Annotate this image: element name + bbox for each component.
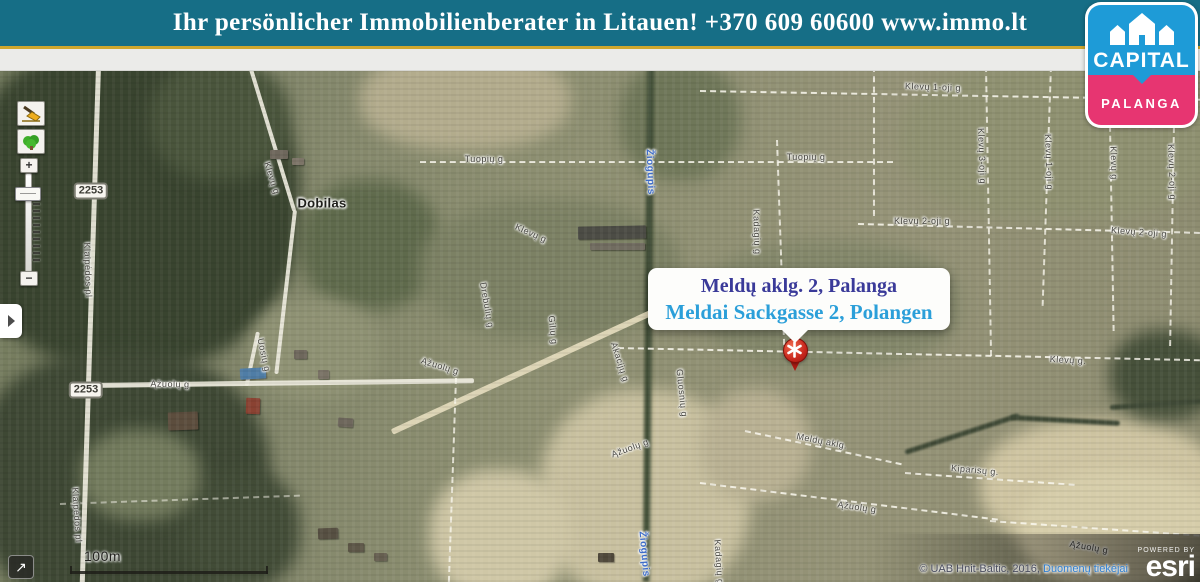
- road-number-badge: 2253: [69, 382, 103, 399]
- building: [168, 411, 199, 430]
- dashed-road: [873, 66, 875, 216]
- building: [598, 553, 614, 562]
- street-label: Klevų g: [1108, 146, 1119, 180]
- road-number-badge: 2253: [74, 183, 108, 200]
- arrow-up-right-icon: ↗: [15, 559, 27, 575]
- logo-city-text: PALANGA: [1101, 96, 1182, 111]
- header-title: Ihr persönlicher Immobilienberater in Li…: [0, 0, 1200, 46]
- building: [578, 225, 646, 239]
- scale-line: [70, 571, 268, 574]
- terrain-patch: [80, 430, 200, 520]
- building: [348, 543, 364, 552]
- building: [246, 398, 261, 414]
- street-label: Klevų 3-oji g: [976, 128, 988, 184]
- house-icon: [1129, 13, 1155, 45]
- clear-map-tool-button[interactable]: [17, 101, 45, 126]
- house-icon: [1110, 25, 1125, 45]
- house-icon: [1159, 25, 1174, 45]
- building: [294, 350, 307, 359]
- address-line-lt: Meldų aklg. 2, Palanga: [701, 273, 897, 299]
- layers-tool-button[interactable]: [17, 129, 45, 154]
- street-label: Klevų 2-oji g: [1111, 225, 1168, 239]
- header-banner: Ihr persönlicher Immobilienberater in Li…: [0, 0, 1200, 46]
- door-icon: [1139, 35, 1145, 45]
- address-line-de: Meldai Sackgasse 2, Polangen: [665, 299, 932, 326]
- building: [318, 528, 338, 540]
- broom-icon: [19, 104, 43, 124]
- map[interactable]: Klaipėdos plKlaipėdos plKlevų gDobilasTu…: [0, 0, 1200, 582]
- logo-top-section: CAPITAL: [1088, 5, 1195, 75]
- street-label: Klaipėdos pl: [82, 242, 94, 297]
- water-label: Žiogupis: [644, 149, 657, 195]
- logo-brand-text: CAPITAL: [1088, 49, 1195, 73]
- street-label: Ąžuolų g: [420, 356, 460, 377]
- scale-label: 100m: [84, 548, 121, 564]
- chevron-right-icon: [8, 315, 15, 327]
- address-popup: Meldų aklg. 2, Palanga Meldai Sackgasse …: [648, 268, 950, 330]
- street-label: Kadagių g: [751, 209, 763, 254]
- data-providers-link[interactable]: Duomenų tiekėjai: [1043, 563, 1128, 575]
- zoom-slider-ticks: [33, 203, 40, 261]
- street-label: Klevų 2-oji g: [1166, 144, 1178, 200]
- building: [590, 243, 645, 250]
- sidebar-expand-tab[interactable]: [0, 304, 22, 338]
- street-label: Ąžuolų g: [150, 379, 189, 390]
- powered-by-text: POWERED BY: [1138, 547, 1195, 554]
- toolbar-strip: [0, 49, 1200, 71]
- tree-icon: [19, 132, 43, 152]
- fullscreen-button[interactable]: ↗: [8, 555, 34, 579]
- building: [270, 150, 288, 159]
- logo-notch: [1133, 75, 1151, 84]
- esri-logo[interactable]: POWERED BY esri: [1138, 547, 1195, 580]
- attribution: © UAB Hnit-Baltic, 2016, Duomenų tiekėja…: [919, 563, 1128, 575]
- building: [374, 553, 387, 561]
- street-label: Klevų 1-oji g: [1043, 134, 1055, 190]
- esri-wordmark: esri: [1138, 554, 1195, 580]
- zoom-slider-handle[interactable]: [15, 187, 41, 201]
- street-label: Klevų 2-oji g: [894, 216, 950, 226]
- copyright-text: © UAB Hnit-Baltic, 2016,: [919, 563, 1040, 575]
- capital-palanga-logo[interactable]: CAPITAL PALANGA: [1085, 2, 1198, 128]
- page: Klaipėdos plKlaipėdos plKlevų gDobilasTu…: [0, 0, 1200, 582]
- zoom-in-button[interactable]: +: [20, 158, 38, 173]
- building: [338, 417, 354, 427]
- settlement-label: Dobilas: [297, 196, 346, 211]
- zoom-out-button[interactable]: −: [20, 271, 38, 286]
- logo-bottom-section: PALANGA: [1088, 75, 1195, 125]
- building: [318, 370, 329, 379]
- street-label: Klevų 1-oji g: [905, 81, 961, 93]
- building: [292, 158, 304, 165]
- street-label: Tuopių g: [787, 152, 826, 162]
- street-label: Klevų g.: [1049, 354, 1086, 366]
- street-label: Tuopių g: [465, 154, 504, 164]
- street-label: Ąžuolų g: [837, 499, 877, 514]
